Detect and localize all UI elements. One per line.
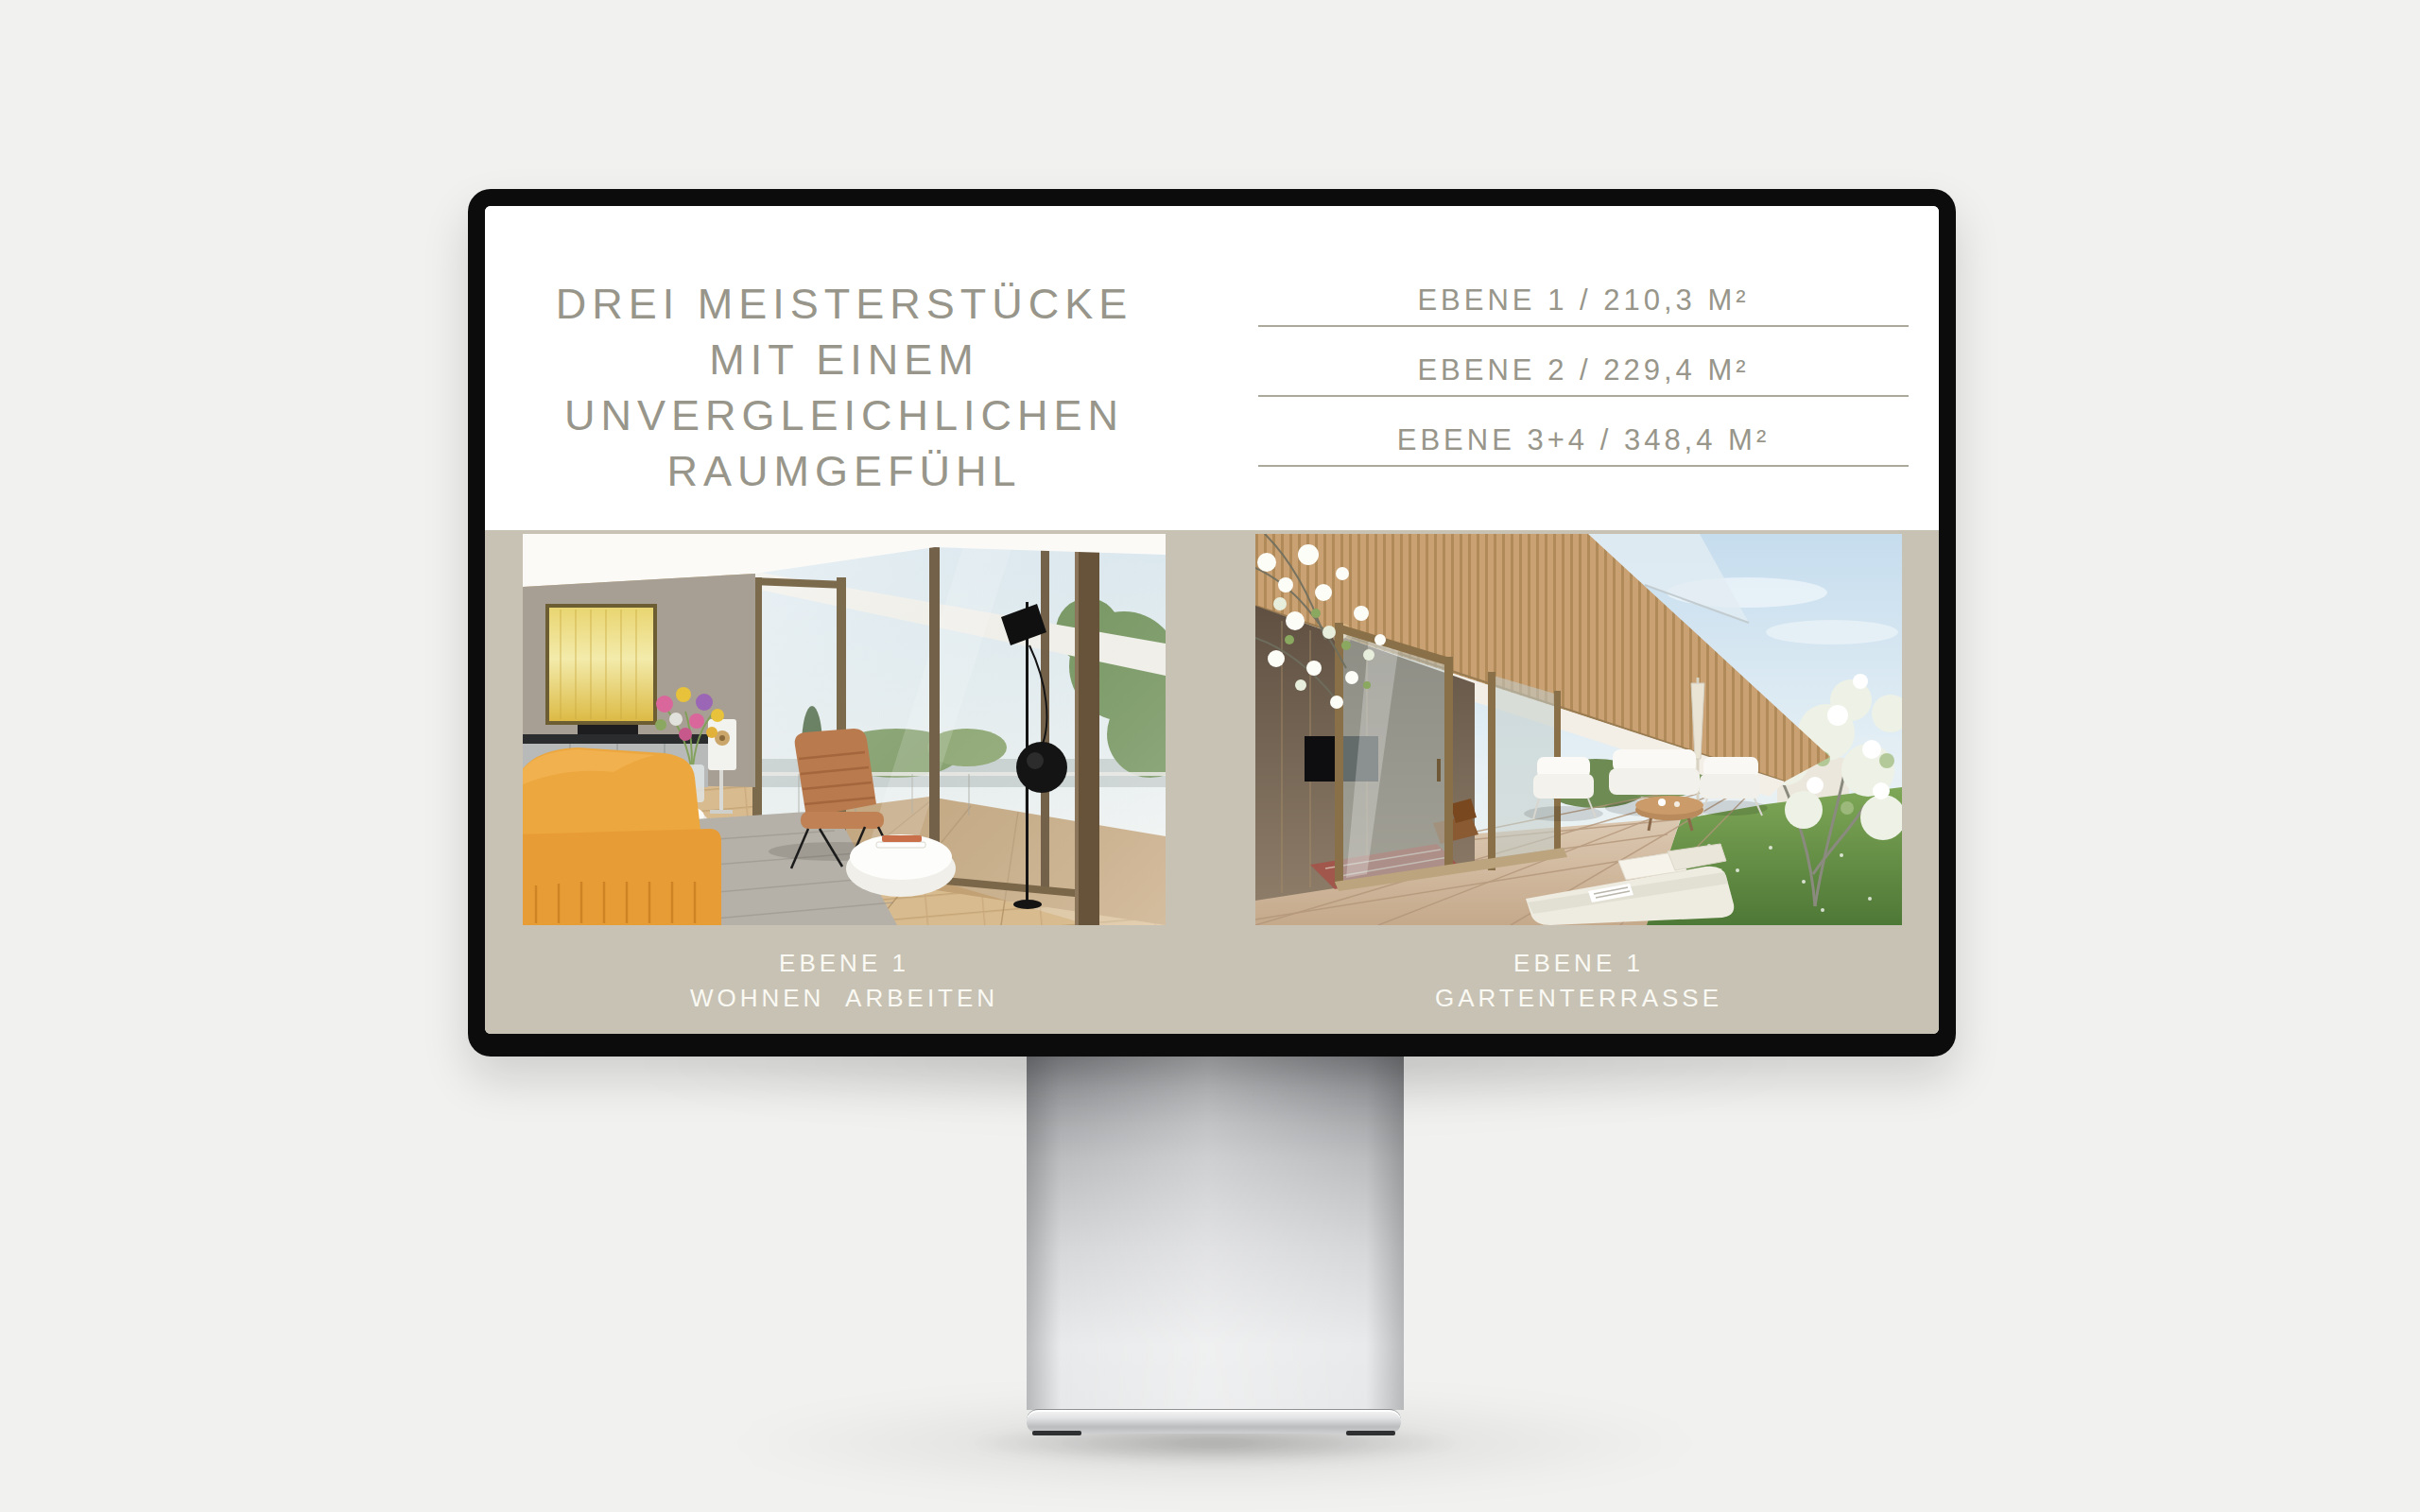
level-label: EBENE 3+4 / 348,4 M²: [1258, 416, 1909, 465]
stand-foot-right: [1346, 1431, 1395, 1435]
caption-line: GARTENTERRASSE: [1255, 981, 1902, 1016]
caption-line: EBENE 1: [1255, 946, 1902, 981]
figure-caption: EBENE 1 WOHNEN ARBEITEN: [523, 946, 1166, 1016]
monitor-stand-column: [1027, 1051, 1404, 1410]
caption-line: EBENE 1: [523, 946, 1166, 981]
headline-line: MIT EINEM: [523, 332, 1166, 387]
headline-line: DREI MEISTERSTÜCKE: [523, 276, 1166, 332]
sofa: [523, 747, 721, 925]
wall-artwork: [545, 604, 657, 725]
level-row: EBENE 1 / 210,3 M²: [1258, 276, 1909, 327]
figure-caption: EBENE 1 GARTENTERRASSE: [1255, 946, 1902, 1016]
garden-terrace-render: [1255, 534, 1902, 925]
figure-wohnen-arbeiten: EBENE 1 WOHNEN ARBEITEN: [523, 534, 1166, 1016]
living-room-render: [523, 534, 1166, 925]
level-divider: [1258, 465, 1909, 467]
living-room-render-svg: [523, 534, 1166, 925]
level-divider: [1258, 325, 1909, 327]
level-label: EBENE 1 / 210,3 M²: [1258, 276, 1909, 325]
slide-headline: DREI MEISTERSTÜCKE MIT EINEM UNVERGLEICH…: [523, 276, 1166, 499]
level-divider: [1258, 395, 1909, 397]
headline-line: RAUMGEFÜHL: [523, 443, 1166, 499]
cloud-side-table: [846, 834, 956, 897]
screen: DREI MEISTERSTÜCKE MIT EINEM UNVERGLEICH…: [485, 206, 1939, 1034]
image-band: EBENE 1 WOHNEN ARBEITEN: [485, 530, 1939, 1034]
caption-line: WOHNEN ARBEITEN: [523, 981, 1166, 1016]
garden-terrace-render-svg: [1255, 534, 1902, 925]
level-area-list: EBENE 1 / 210,3 M² EBENE 2 / 229,4 M² EB…: [1258, 276, 1909, 486]
headline-line: UNVERGLEICHLICHEN: [523, 387, 1166, 443]
level-label: EBENE 2 / 229,4 M²: [1258, 346, 1909, 395]
monitor-stand-base: [1027, 1409, 1401, 1434]
slide-header: DREI MEISTERSTÜCKE MIT EINEM UNVERGLEICH…: [485, 206, 1939, 530]
level-row: EBENE 2 / 229,4 M²: [1258, 346, 1909, 397]
stand-foot-left: [1032, 1431, 1081, 1435]
level-row: EBENE 3+4 / 348,4 M²: [1258, 416, 1909, 467]
figure-gartenterrasse: EBENE 1 GARTENTERRASSE: [1255, 534, 1902, 1016]
monitor-frame: DREI MEISTERSTÜCKE MIT EINEM UNVERGLEICH…: [468, 189, 1956, 1057]
